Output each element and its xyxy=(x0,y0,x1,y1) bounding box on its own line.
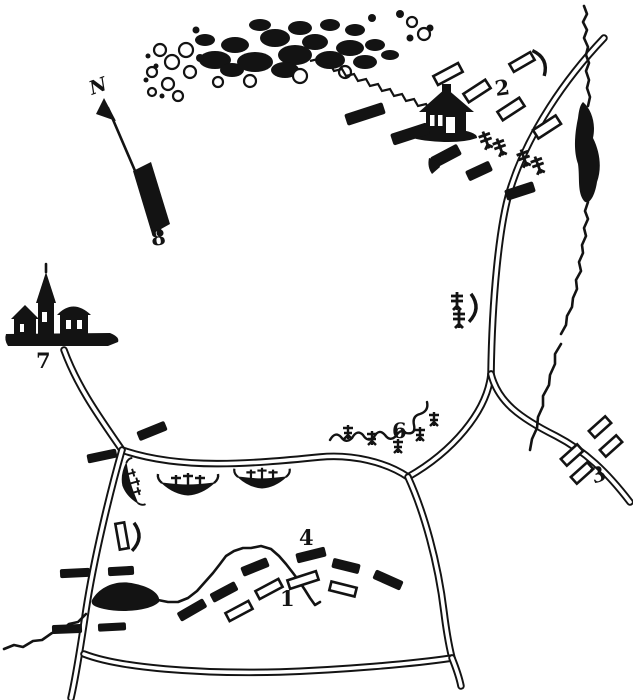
stream-east xyxy=(530,6,600,450)
stream-southwest xyxy=(4,546,320,649)
road-stub-south xyxy=(452,658,461,686)
woods xyxy=(144,10,434,101)
road-center-south xyxy=(408,477,452,658)
battle-map: N 8 2 7 6 3 1 4 xyxy=(0,0,633,700)
label-1: 1 xyxy=(280,586,295,611)
village-church-icon xyxy=(5,264,118,346)
road-east-west xyxy=(122,450,408,477)
label-2: 2 xyxy=(493,74,511,101)
pond-southwest xyxy=(92,582,160,611)
label-north: N xyxy=(85,73,110,100)
hedgerow-trees xyxy=(330,402,439,453)
troop-bars-outline xyxy=(115,52,622,621)
road-fork-west xyxy=(408,374,491,477)
bracket-icons xyxy=(132,48,550,551)
pond-east xyxy=(575,102,600,202)
label-4: 4 xyxy=(299,525,314,550)
road-bottom xyxy=(84,654,452,672)
label-7: 7 xyxy=(36,348,51,373)
troop-bars-solid xyxy=(52,102,536,634)
road-to-village xyxy=(64,350,122,450)
label-6: 6 xyxy=(392,418,407,443)
label-8: 8 xyxy=(149,224,167,251)
map-canvas: N 8 2 7 6 3 1 4 xyxy=(0,0,633,700)
north-arrow xyxy=(96,98,170,237)
